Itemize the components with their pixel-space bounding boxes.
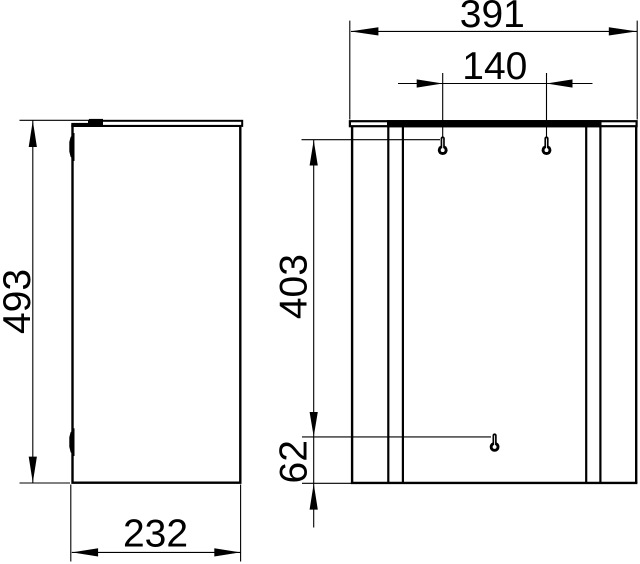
svg-text:62: 62 bbox=[273, 440, 316, 483]
svg-text:493: 493 bbox=[0, 269, 39, 334]
svg-text:391: 391 bbox=[460, 0, 525, 36]
svg-text:140: 140 bbox=[462, 45, 527, 88]
svg-text:403: 403 bbox=[273, 254, 316, 319]
svg-text:232: 232 bbox=[123, 513, 188, 556]
